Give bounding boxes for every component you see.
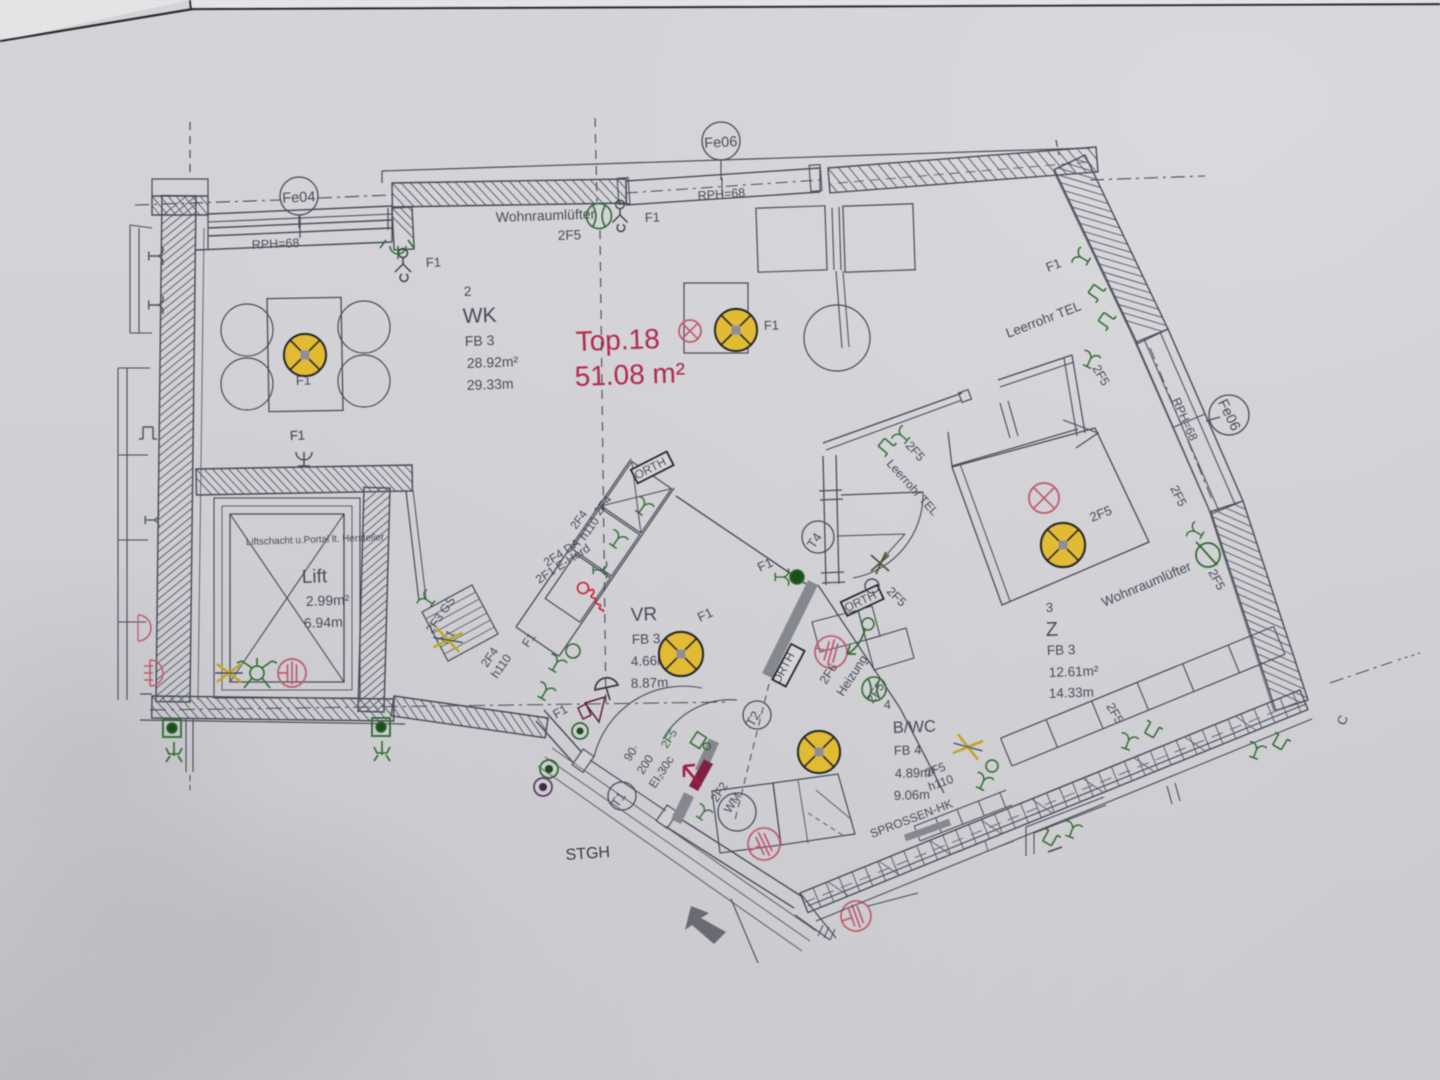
svg-text:2: 2 [464, 284, 472, 299]
svg-text:F1: F1 [290, 427, 306, 443]
svg-text:B/WC: B/WC [893, 718, 937, 737]
svg-text:6.94m: 6.94m [304, 614, 343, 631]
svg-text:51.08 m²: 51.08 m² [574, 357, 686, 392]
svg-text:F1: F1 [645, 209, 661, 225]
svg-text:3: 3 [1046, 600, 1054, 615]
svg-text:VR: VR [630, 604, 657, 626]
svg-text:F1: F1 [296, 372, 312, 388]
svg-text:9.06m: 9.06m [894, 787, 931, 803]
svg-text:Lift: Lift [301, 566, 328, 588]
svg-text:Fe06: Fe06 [704, 134, 738, 152]
svg-text:WK: WK [462, 304, 497, 328]
svg-text:2.99m²: 2.99m² [306, 591, 350, 609]
svg-text:Fe04: Fe04 [282, 189, 316, 206]
svg-text:FB 3: FB 3 [465, 332, 495, 349]
svg-text:2F5: 2F5 [558, 227, 582, 243]
svg-text:Top.18: Top.18 [575, 323, 660, 357]
svg-text:4: 4 [884, 698, 891, 712]
svg-text:FB 3: FB 3 [632, 631, 661, 647]
svg-text:14.33m: 14.33m [1049, 684, 1095, 701]
svg-text:F1: F1 [426, 254, 442, 270]
svg-text:12.61m²: 12.61m² [1049, 663, 1100, 680]
svg-text:8.87m: 8.87m [631, 675, 669, 691]
svg-text:29.33m: 29.33m [467, 375, 514, 393]
svg-text:FB 4: FB 4 [894, 742, 922, 758]
svg-text:STGH: STGH [565, 844, 611, 864]
svg-text:F1: F1 [764, 317, 780, 333]
svg-text:Z: Z [1045, 619, 1058, 641]
svg-text:FB 3: FB 3 [1047, 642, 1076, 658]
svg-text:RPH=68: RPH=68 [252, 236, 300, 252]
svg-text:28.92m²: 28.92m² [467, 353, 519, 371]
